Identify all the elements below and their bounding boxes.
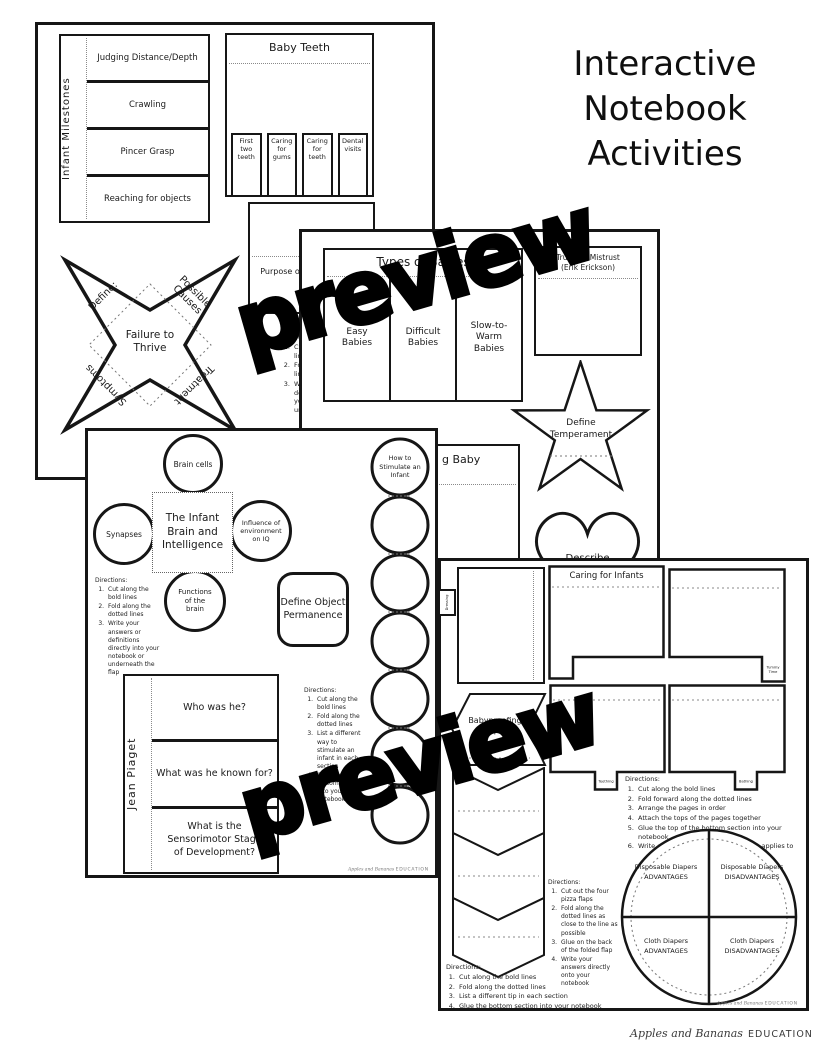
directions-item: Attach the tops of the pages together [636,814,797,823]
caring-box-shape [548,565,665,680]
directions-item: Glue the bottom section into your notebo… [457,1002,646,1011]
wheel-quadrant-tl: Disposable Diapers ADVANTAGES [629,863,703,883]
directions-heading: Directions: [625,775,797,784]
tummy-time-tab-label: Tummy Time [768,664,778,674]
milestones-rows: Judging Distance/Depth Crawling Pincer G… [87,36,208,221]
baby-teeth-tab: Dental visits [338,133,369,197]
directions-heading: Directions: [95,577,161,585]
directions-item: Cut out the four pizza flaps [559,888,618,904]
infant-milestones-label: Infant Milestones [61,36,86,221]
cootie-center-label: Failure to Thrive [110,322,190,362]
page3-brain-directions: Directions: Cut along the bold lines Fol… [95,577,161,678]
baby-teeth-fold-line [229,63,370,64]
baby-teeth-foldable: Baby Teeth First two teeth Caring for gu… [225,33,374,197]
wheel-label: DISADVANTAGES [715,947,789,957]
wheel-quadrant-tr: Disposable Diapers DISADVANTAGES [715,863,789,883]
wheel-label: ADVANTAGES [629,873,703,883]
wheel-label: Disposable Diapers [715,863,789,873]
dressing-fold-line [533,571,534,680]
brand-name: Apples and Bananas [717,1001,763,1006]
directions-heading: Directions: [548,879,618,887]
dressing-tab-label: Dressing [442,599,452,605]
milestone-row: Crawling [87,80,208,127]
brain-petal-right: Influence of environment on IQ [230,500,292,562]
brain-petal-top: Brain cells [163,434,223,494]
title-line-3: Activities [534,132,796,177]
directions-heading: Directions: [446,963,646,972]
wheel-quadrant-bl: Cloth Diapers ADVANTAGES [629,937,703,957]
caring-title: Caring for Infants [548,571,665,581]
brand-suffix: EDUCATION [765,1001,798,1006]
brain-center-square: The Infant Brain and Intelligence [152,492,233,573]
brain-petal-bottom: Functions of the brain [164,570,226,632]
directions-item: Cut along the bold lines [457,973,646,982]
wheel-label: Disposable Diapers [629,863,703,873]
directions-list: Cut along the bold lines Fold along the … [95,586,161,677]
outer-brand-mark: Apples and Bananas EDUCATION [630,1022,806,1041]
wheel-label: DISADVANTAGES [715,873,789,883]
temperament-star-label: Define Temperament [544,412,618,448]
piaget-label: Jean Piaget [125,676,151,872]
milestone-row: Reaching for objects [87,174,208,221]
page-title: Interactive Notebook Activities [534,42,796,177]
baby-teeth-tab: First two teeth [231,133,262,197]
baby-teeth-tabs: First two teeth Caring for gums Caring f… [231,133,368,197]
directions-item: Arrange the pages in order [636,804,797,813]
brand-name: Apples and Bananas [630,1027,743,1040]
directions-list: Cut along the bold lines Fold along the … [446,973,646,1011]
temperament-star: Define Temperament [508,360,654,502]
directions-item: Fold along the dotted lines [106,603,161,619]
page4-zigzag-directions: Directions: Cut along the bold lines Fol… [446,963,646,1012]
piaget-row: Who was he? [152,676,277,739]
directions-item: Fold along the dotted lines [457,983,646,992]
diaper-wheel-shape [619,827,799,1007]
object-permanence-card: Define Object Permanence [277,572,349,647]
brand-suffix: EDUCATION [396,867,429,872]
directions-item: Fold forward along the dotted lines [636,795,797,804]
milestone-row: Judging Distance/Depth [87,36,208,80]
directions-item: Cut along the bold lines [315,696,364,712]
dressing-tab: Dressing [438,589,456,616]
wheel-label: Cloth Diapers [629,937,703,947]
dressing-page-box [457,567,545,684]
teething-tab-label: Teething [601,777,611,784]
diaper-wheel: Disposable Diapers ADVANTAGES Disposable… [619,827,799,1007]
milestone-row: Pincer Grasp [87,127,208,174]
title-line-1: Interactive [534,42,796,87]
directions-item: List a different tip in each section [457,992,646,1001]
wheel-quadrant-br: Cloth Diapers DISADVANTAGES [715,937,789,957]
directions-item: Fold along the dotted lines as close to … [559,905,618,937]
directions-item: Cut along the bold lines [106,586,161,602]
brand-suffix: EDUCATION [748,1029,813,1040]
baby-teeth-tab: Caring for teeth [302,133,333,197]
baby-teeth-tab: Caring for gums [267,133,298,197]
failure-to-thrive-cootie-catcher: Failure to Thrive Define: Possible Cause… [55,250,245,440]
baby-flap-title: g Baby [442,453,480,466]
wheel-label: ADVANTAGES [629,947,703,957]
brain-petal-left: Synapses [93,503,155,565]
brand-name: Apples and Bananas [348,867,394,872]
page3-brand-mark: Apples and Bananas EDUCATION [348,867,429,872]
directions-heading: Directions: [304,687,364,695]
wheel-label: Cloth Diapers [715,937,789,947]
directions-item: Write your answers or definitions direct… [106,620,161,677]
baby-teeth-title: Baby Teeth [227,41,372,54]
page4-brand-mark: Apples and Bananas EDUCATION [717,1001,798,1006]
infant-milestones-foldable: Infant Milestones Judging Distance/Depth… [59,34,210,223]
directions-item: Glue on the back of the folded flap [559,939,618,955]
tummy-time-box: Tummy Time [668,568,786,683]
title-line-2: Notebook [534,87,796,132]
directions-item: Cut along the bold lines [636,785,797,794]
caring-for-infants-box: Caring for Infants [548,565,665,680]
stimulate-chain-label: How to Stimulate an Infant [372,445,428,489]
